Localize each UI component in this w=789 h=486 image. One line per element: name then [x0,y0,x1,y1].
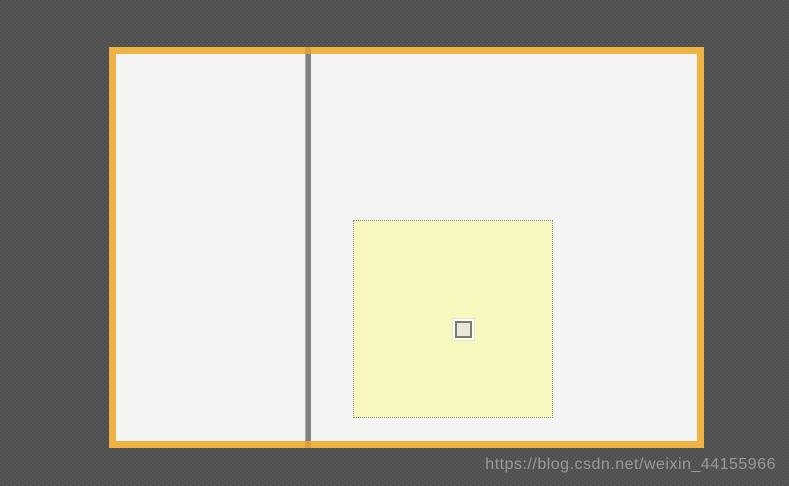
desktop-background: { "background": { "base_color": "#4e4e4e… [0,0,789,486]
watermark-url: https://blog.csdn.net/weixin_44155966 [485,457,776,473]
small-box-widget[interactable] [452,318,475,341]
small-box-inner-frame [455,321,472,338]
splitter-handle[interactable] [305,54,311,441]
splitter-bottom-cap [305,441,311,448]
left-panel [116,54,305,441]
splitter-top-cap [305,47,311,54]
